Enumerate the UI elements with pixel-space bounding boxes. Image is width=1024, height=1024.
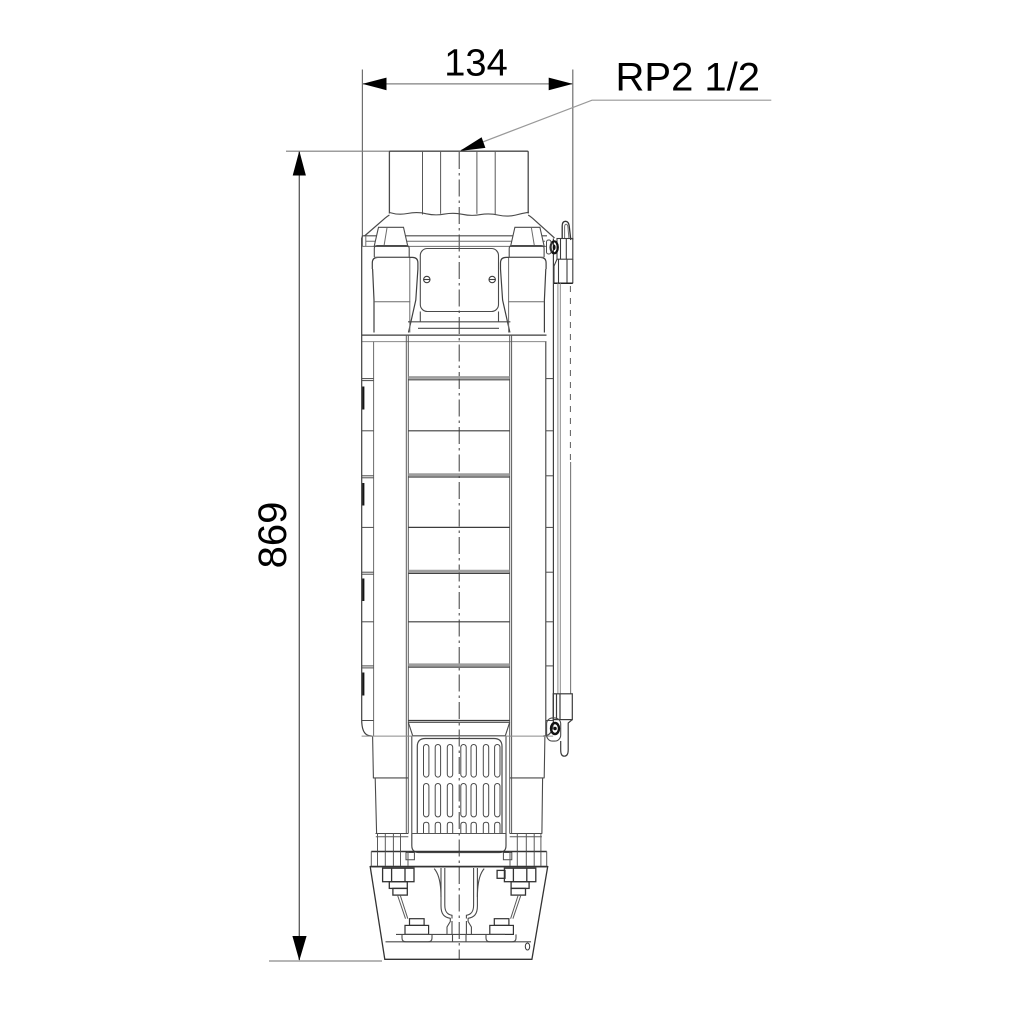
svg-text:RP2 1/2: RP2 1/2 [616, 56, 761, 100]
svg-text:134: 134 [444, 43, 507, 85]
svg-text:869: 869 [251, 502, 295, 569]
